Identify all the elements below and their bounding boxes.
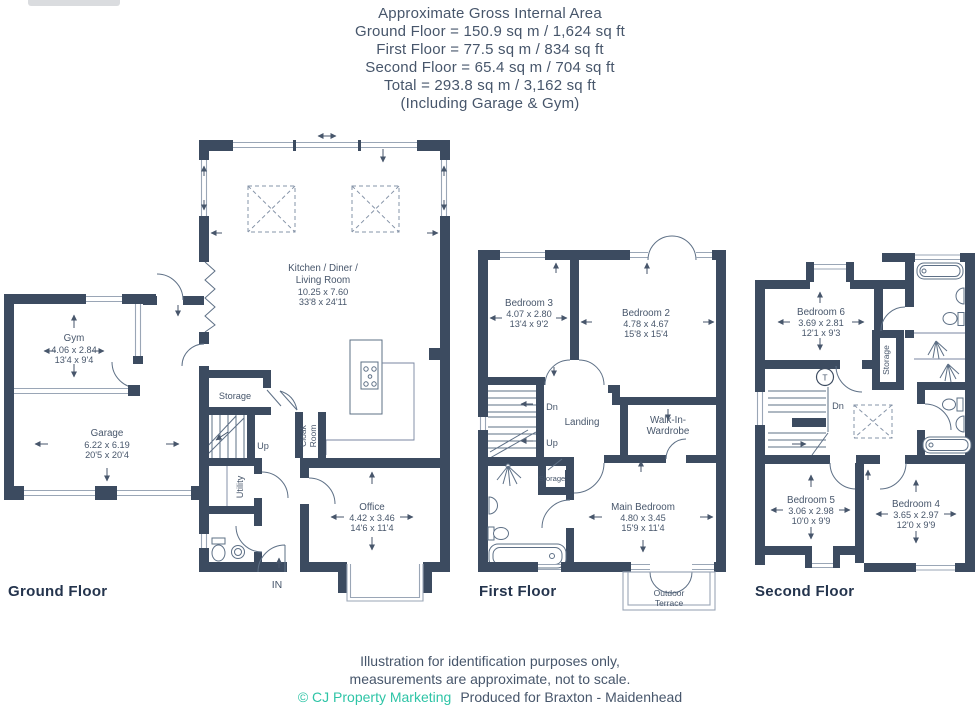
room-label-main-bedroom: Main Bedroom [611, 502, 675, 513]
room-label-garage: Garage [91, 428, 124, 439]
ground-floor-title: Ground Floor [8, 583, 107, 600]
room-label-storage-ff: Storage [539, 474, 566, 483]
stairs-up-label-ff: Up [546, 438, 558, 448]
ground-floor-plan: Kitchen / Diner / Living Room 10.25 x 7.… [4, 136, 450, 601]
terrace-label-2: Terrace [655, 598, 684, 608]
room-dim-bedroom6-metric: 3.69 x 2.81 [798, 318, 843, 328]
stairs-dn-up [488, 391, 536, 458]
room-dim-bedroom5-metric: 3.06 x 2.98 [788, 506, 833, 516]
room-label-utility: Utility [235, 475, 245, 498]
room-dim-kitchen-metric: 10.25 x 7.60 [298, 287, 349, 297]
toilet-icon [943, 313, 964, 326]
room-dim-office-imperial: 14'6 x 11'4 [350, 523, 393, 533]
room-dim-bedroom3-imperial: 13'4 x 9'2 [510, 319, 549, 329]
second-floor-title: Second Floor [755, 583, 854, 600]
second-floor-plan: Bedroom 6 3.69 x 2.81 12'1 x 9'3 Storage… [755, 253, 975, 572]
room-label-bedroom5: Bedroom 5 [787, 495, 835, 506]
room-dim-main-metric: 4.80 x 3.45 [620, 513, 665, 523]
tank-label: T [822, 373, 827, 383]
room-label-kitchen: Kitchen / Diner / [288, 263, 358, 274]
room-dim-bedroom3-metric: 4.07 x 2.80 [506, 309, 551, 319]
room-dim-bedroom6-imperial: 12'1 x 9'3 [802, 328, 841, 338]
disclaimer-line-2: measurements are approximate, not to sca… [0, 670, 980, 688]
room-dim-gym-metric: 4.06 x 2.84 [51, 345, 96, 355]
room-dim-office-metric: 4.42 x 3.46 [349, 513, 394, 523]
room-label-walkin-1: Walk-In- [650, 415, 686, 426]
produced-for-label: Produced for Braxton - Maidenhead [460, 688, 682, 706]
shower-icon [940, 364, 959, 382]
room-label-cloak-1: Cloak [298, 424, 308, 446]
shower-icon [497, 464, 521, 486]
room-label-office: Office [359, 502, 385, 513]
room-dim-bedroom4-metric: 3.65 x 2.97 [893, 510, 938, 520]
floorplan-canvas: Kitchen / Diner / Living Room 10.25 x 7.… [0, 0, 980, 712]
shower-icon [928, 341, 947, 359]
credit-label: © CJ Property Marketing [298, 688, 451, 706]
toilet-icon [943, 398, 964, 411]
room-dim-bedroom5-imperial: 10'0 x 9'9 [792, 516, 831, 526]
room-label-bedroom2: Bedroom 2 [622, 308, 670, 319]
sink-icon [956, 416, 964, 432]
room-label-storage-sf: Storage [881, 345, 891, 375]
room-dim-bedroom4-imperial: 12'0 x 9'9 [897, 520, 936, 530]
footer-disclaimer: Illustration for identification purposes… [0, 652, 980, 706]
room-dim-bedroom2-metric: 4.78 x 4.67 [623, 319, 668, 329]
toilet-icon [488, 527, 509, 540]
room-label-bedroom4: Bedroom 4 [892, 499, 940, 510]
room-label-gym: Gym [64, 333, 85, 344]
first-floor-title: First Floor [479, 583, 556, 600]
room-label-cloak-2: Room [308, 425, 318, 448]
sink-icon [956, 288, 964, 304]
terrace-label-1: Outdoor [654, 588, 685, 598]
first-floor-plan: Bedroom 3 4.07 x 2.80 13'4 x 9'2 Bedroom… [478, 236, 726, 610]
bath-icon [923, 437, 971, 453]
room-label-bedroom3: Bedroom 3 [505, 298, 553, 309]
skylight-icon [854, 405, 892, 438]
skylight-icon [248, 186, 399, 232]
room-dim-kitchen-imperial: 33'8 x 24'11 [299, 297, 347, 307]
sink-icon [232, 546, 245, 559]
room-dim-garage-metric: 6.22 x 6.19 [84, 440, 129, 450]
room-dim-garage-imperial: 20'5 x 20'4 [85, 450, 129, 460]
room-label-walkin-2: Wardrobe [647, 426, 690, 437]
entrance-label: IN [272, 579, 283, 591]
room-label-bedroom6: Bedroom 6 [797, 307, 845, 318]
stairs-up [204, 415, 244, 458]
bath-icon [917, 263, 963, 279]
stairs-dn [768, 387, 828, 455]
kitchen-island [350, 340, 382, 414]
toilet-icon [212, 538, 225, 561]
room-dim-bedroom2-imperial: 15'8 x 15'4 [624, 329, 668, 339]
room-dim-main-imperial: 15'9 x 11'4 [621, 523, 664, 533]
stairs-dn-label-sf: Dn [832, 401, 844, 411]
sink-icon [489, 497, 498, 514]
disclaimer-line-1: Illustration for identification purposes… [0, 652, 980, 670]
room-dim-gym-imperial: 13'4 x 9'4 [55, 355, 94, 365]
room-label-kitchen-2: Living Room [296, 275, 350, 286]
room-label-storage-gf: Storage [219, 391, 251, 401]
room-label-landing: Landing [565, 417, 600, 428]
stairs-up-label: Up [257, 441, 269, 451]
stairs-dn-label: Dn [546, 402, 558, 412]
